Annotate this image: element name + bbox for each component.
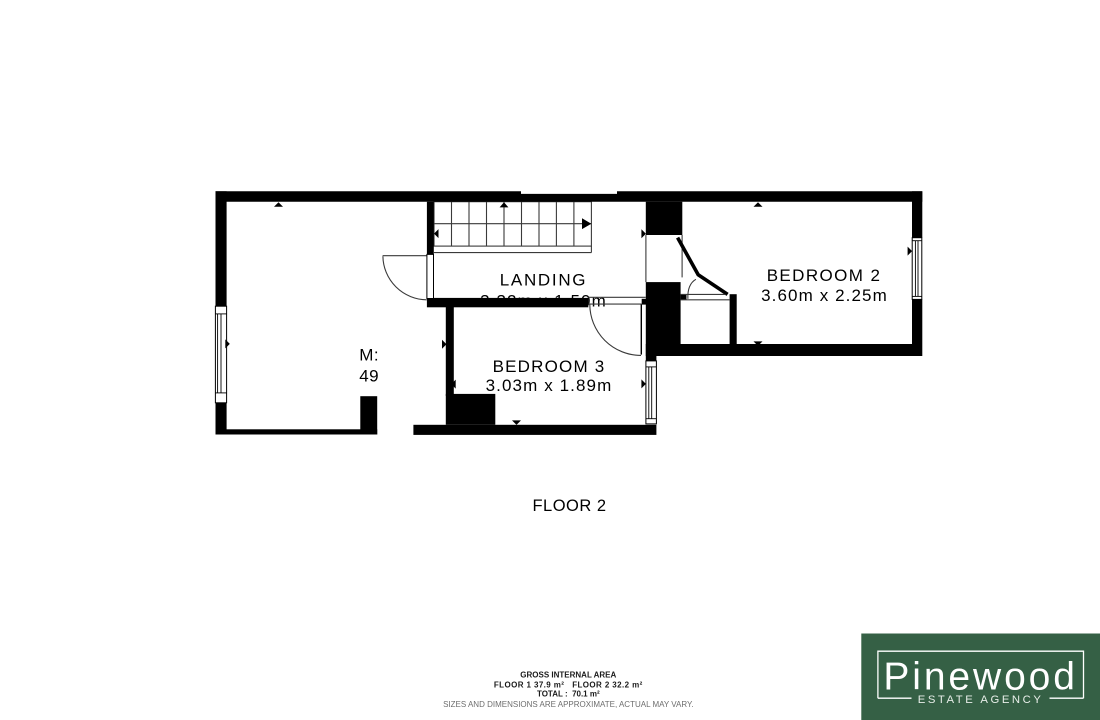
svg-text:FLOOR 1 37.9 m² FLOOR 2 32.2: FLOOR 1 37.9 m² FLOOR 2 32.2 m²: [494, 680, 643, 689]
svg-text:BEDROOM 3: BEDROOM 3: [493, 357, 606, 376]
svg-text:SIZES AND DIMENSIONS ARE APPRO: SIZES AND DIMENSIONS ARE APPROXIMATE, AC…: [443, 700, 693, 709]
svg-text:M:: M:: [359, 345, 379, 364]
svg-text:BEDROOM 2: BEDROOM 2: [767, 266, 882, 285]
svg-text:LANDING: LANDING: [500, 271, 587, 290]
svg-text:49: 49: [359, 367, 379, 386]
svg-text:TOTAL : 70.1 m²: TOTAL : 70.1 m²: [537, 690, 600, 699]
svg-text:3.03m x 1.89m: 3.03m x 1.89m: [486, 376, 613, 395]
svg-text:ESTATE AGENCY: ESTATE AGENCY: [918, 694, 1044, 706]
svg-text:FLOOR 2: FLOOR 2: [532, 497, 606, 515]
svg-text:GROSS INTERNAL AREA: GROSS INTERNAL AREA: [520, 670, 616, 679]
svg-text:3.60m x 2.25m: 3.60m x 2.25m: [761, 286, 888, 305]
svg-text:Pinewood: Pinewood: [883, 655, 1078, 698]
